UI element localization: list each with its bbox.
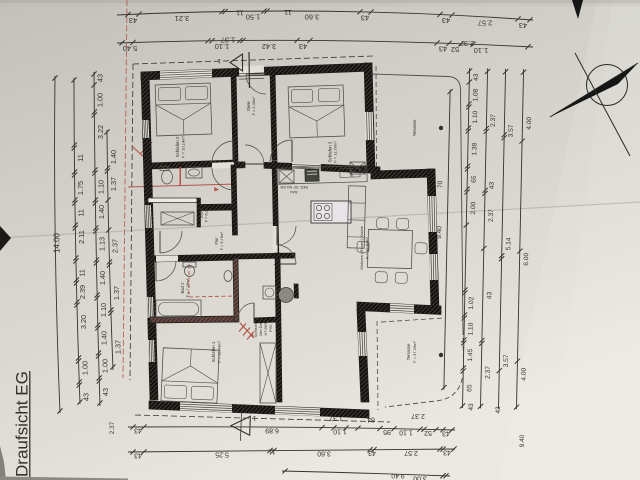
svg-text:Ri03 ´00´ NO EiK: Ri03 ´00´ NO EiK [280, 185, 308, 189]
svg-text:3.42: 3.42 [262, 42, 276, 51]
svg-text:1.00: 1.00 [100, 359, 109, 373]
svg-text:43: 43 [439, 45, 447, 54]
svg-text:70: 70 [437, 180, 444, 188]
svg-text:43: 43 [495, 406, 502, 414]
svg-text:2.37: 2.37 [111, 239, 120, 253]
svg-text:43: 43 [368, 449, 376, 456]
svg-text:11: 11 [76, 154, 85, 162]
svg-text:F = 32,84m²: F = 32,84m² [365, 237, 370, 259]
svg-text:43: 43 [134, 426, 142, 433]
svg-text:3.60: 3.60 [305, 13, 319, 22]
svg-text:Terrasse: Terrasse [406, 343, 411, 360]
svg-text:1.37: 1.37 [221, 36, 235, 45]
svg-text:1.10: 1.10 [468, 322, 475, 335]
svg-text:5.40: 5.40 [123, 44, 137, 53]
svg-text:2.37: 2.37 [488, 209, 495, 222]
svg-text:4.00: 4.00 [521, 367, 528, 380]
svg-text:11: 11 [284, 8, 292, 17]
svg-text:2.57: 2.57 [404, 449, 418, 456]
svg-text:43: 43 [81, 393, 90, 401]
svg-text:43: 43 [101, 388, 110, 396]
svg-text:2.37: 2.37 [460, 39, 474, 48]
svg-text:1.40: 1.40 [100, 331, 109, 345]
svg-text:43: 43 [361, 13, 369, 22]
svg-text:14.00: 14.00 [52, 232, 61, 253]
svg-text:3.00: 3.00 [413, 474, 427, 480]
svg-text:43: 43 [443, 449, 451, 456]
svg-text:1.40: 1.40 [97, 205, 106, 219]
svg-text:1.08: 1.08 [472, 88, 479, 101]
svg-text:Terrasse: Terrasse [412, 119, 417, 136]
svg-text:4.00: 4.00 [526, 116, 533, 129]
svg-text:3iAd: 3iAd [290, 190, 297, 194]
svg-text:1.00: 1.00 [96, 93, 105, 107]
svg-text:1.50: 1.50 [246, 13, 260, 22]
svg-text:9.40: 9.40 [391, 472, 404, 479]
svg-text:PVC: PVC [269, 324, 273, 332]
svg-text:2.37: 2.37 [490, 114, 497, 127]
svg-text:F = 11,70m²: F = 11,70m² [333, 141, 338, 163]
svg-text:11: 11 [268, 447, 275, 454]
svg-text:1.00: 1.00 [80, 361, 89, 375]
svg-text:65: 65 [471, 175, 478, 183]
svg-text:3.22: 3.22 [96, 125, 105, 139]
svg-text:F = 2,48m²: F = 2,48m² [252, 96, 256, 115]
svg-text:1.10: 1.10 [474, 46, 488, 55]
svg-text:2.37: 2.37 [485, 366, 492, 379]
svg-text:1.10: 1.10 [333, 427, 347, 434]
svg-text:1.10: 1.10 [399, 428, 413, 435]
svg-text:5.25: 5.25 [215, 450, 229, 457]
svg-text:43: 43 [442, 429, 450, 436]
svg-text:2.11: 2.11 [77, 230, 86, 244]
svg-text:43: 43 [96, 74, 105, 82]
svg-text:3.60: 3.60 [317, 449, 331, 456]
svg-text:5.14: 5.14 [505, 237, 512, 250]
svg-text:43: 43 [468, 403, 475, 411]
svg-text:1.10: 1.10 [97, 180, 106, 194]
svg-text:Bad 2: Bad 2 [180, 282, 185, 294]
svg-text:11: 11 [236, 8, 244, 17]
svg-text:3.20: 3.20 [79, 315, 88, 329]
svg-text:2.39: 2.39 [78, 285, 87, 299]
svg-text:Wohnen | Essen | Küche: Wohnen | Essen | Küche [359, 225, 364, 270]
svg-text:F = 6,08m²: F = 6,08m² [205, 203, 209, 222]
svg-text:1.37: 1.37 [114, 340, 123, 354]
svg-text:1.40: 1.40 [109, 150, 118, 164]
svg-text:Schlafen 2: Schlafen 2 [175, 136, 180, 157]
svg-text:1.75: 1.75 [76, 181, 85, 195]
svg-text:Diele: Diele [246, 101, 251, 111]
svg-text:1: 1 [217, 57, 221, 64]
svg-text:Flur: Flur [214, 237, 219, 245]
svg-text:11: 11 [77, 209, 86, 217]
svg-text:43: 43 [489, 181, 496, 189]
svg-text:6.00: 6.00 [523, 252, 530, 265]
svg-text:1.38: 1.38 [471, 142, 478, 155]
svg-text:F = 37,26m²: F = 37,26m² [412, 341, 417, 363]
svg-text:F = 7,28m²: F = 7,28m² [186, 278, 190, 297]
svg-text:52: 52 [424, 429, 432, 436]
svg-text:11: 11 [78, 269, 87, 277]
svg-text:9.40: 9.40 [519, 434, 526, 447]
svg-text:6.89: 6.89 [265, 427, 279, 434]
svg-text:1.40: 1.40 [98, 271, 107, 285]
svg-text:1.45: 1.45 [467, 348, 474, 361]
svg-text:2.37: 2.37 [411, 412, 425, 419]
svg-text:1.10: 1.10 [99, 303, 108, 317]
svg-text:43: 43 [486, 291, 493, 299]
svg-text:F = 10,14m²: F = 10,14m² [181, 136, 186, 158]
svg-text:2.37: 2.37 [109, 421, 116, 434]
svg-text:2.00: 2.00 [470, 201, 477, 214]
svg-text:3.21: 3.21 [175, 14, 189, 23]
svg-text:3.57: 3.57 [503, 354, 510, 367]
svg-text:1.10: 1.10 [472, 110, 479, 123]
svg-text:2.57: 2.57 [478, 18, 492, 27]
svg-text:43: 43 [519, 21, 527, 30]
svg-text:1.02: 1.02 [468, 296, 475, 309]
svg-text:43: 43 [442, 16, 450, 25]
svg-text:1.13: 1.13 [98, 237, 107, 251]
svg-text:65: 65 [466, 384, 473, 392]
svg-text:3.57: 3.57 [508, 124, 515, 137]
svg-text:43: 43 [134, 451, 142, 458]
svg-text:95: 95 [383, 428, 391, 435]
svg-text:Bad 1: Bad 1 [199, 207, 204, 219]
svg-text:Draufsicht EG: Draufsicht EG [13, 371, 32, 477]
svg-text:1.37: 1.37 [112, 286, 121, 300]
svg-text:43: 43 [299, 42, 307, 51]
svg-text:F = 16,43m²: F = 16,43m² [217, 341, 222, 363]
svg-text:Schlafen 1: Schlafen 1 [211, 341, 216, 362]
svg-text:F = 9,16m²: F = 9,16m² [220, 231, 224, 250]
svg-text:43: 43 [129, 16, 137, 25]
svg-text:43: 43 [473, 73, 480, 81]
svg-text:1.37: 1.37 [109, 177, 118, 191]
svg-text:52: 52 [451, 45, 459, 54]
